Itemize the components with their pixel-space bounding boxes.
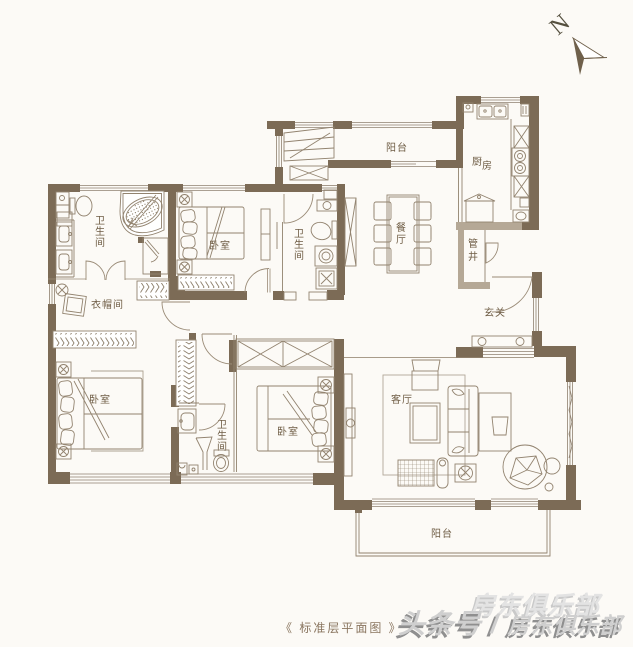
svg-text:厨房: 厨房 xyxy=(472,156,493,172)
svg-text:阳台: 阳台 xyxy=(431,527,453,540)
svg-text:衣帽间: 衣帽间 xyxy=(91,298,124,311)
svg-text:卧室: 卧室 xyxy=(277,425,299,438)
svg-text:卫生间: 卫生间 xyxy=(95,216,106,249)
svg-text:管井: 管井 xyxy=(468,237,479,263)
svg-text:玄关: 玄关 xyxy=(484,306,506,319)
svg-text:卫生间: 卫生间 xyxy=(294,229,305,262)
svg-text:餐厅: 餐厅 xyxy=(396,221,407,246)
svg-text:阳台: 阳台 xyxy=(386,141,408,154)
svg-text:卧室: 卧室 xyxy=(89,393,111,406)
svg-text:卫生间: 卫生间 xyxy=(217,420,228,453)
svg-text:N: N xyxy=(545,10,575,41)
